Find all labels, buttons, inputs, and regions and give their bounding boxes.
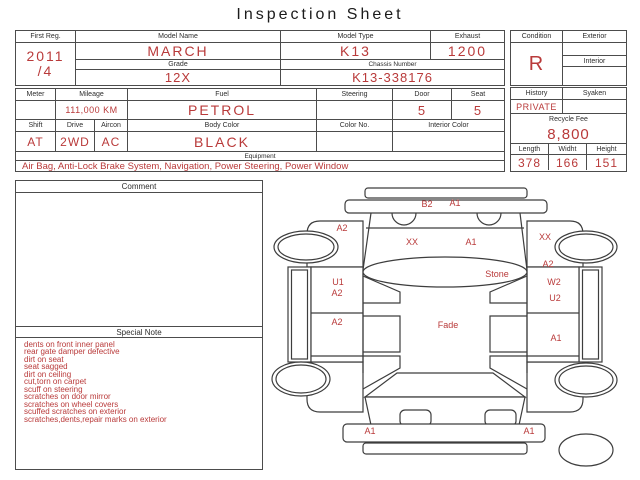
shift-label: Shift — [16, 120, 56, 132]
history-value: PRIVATE — [511, 100, 563, 114]
interior-color-value — [393, 132, 504, 152]
color-no-value — [317, 132, 393, 152]
length-label: Length — [511, 144, 549, 155]
damage-mark-w2: W2 — [547, 277, 561, 287]
rear-bumper-bar — [365, 188, 527, 198]
door-value: 5 — [393, 101, 452, 120]
right-rear-wheel — [555, 231, 617, 263]
drive-value: 2WD — [56, 132, 95, 152]
condition-grade-value: R — [511, 43, 563, 85]
damage-mark-a1: A1 — [550, 333, 561, 343]
left-pillar-mid — [363, 316, 400, 352]
special-note-label: Special Note — [16, 326, 262, 338]
recycle-fee-value: 8,800 — [511, 125, 626, 144]
height-label: Height — [587, 144, 626, 155]
damage-mark-a2: A2 — [542, 259, 553, 269]
rear-right-edge — [520, 213, 527, 270]
history-panel: History Syaken PRIVATE Recycle Fee 8,800… — [510, 87, 627, 172]
length-value: 378 — [511, 155, 549, 170]
special-note-list: dents on front inner panelrear gate damp… — [16, 338, 262, 469]
damage-mark-a1: A1 — [523, 426, 534, 436]
aircon-label: Aircon — [95, 120, 128, 132]
interior-color-label: Interior Color — [393, 120, 504, 132]
damage-mark-a2: A2 — [336, 223, 347, 233]
model-type-value: K13 — [281, 43, 431, 60]
damage-mark-fade: Fade — [438, 320, 459, 330]
model-name-label: Model Name — [76, 31, 281, 43]
damage-mark-a2: A2 — [331, 288, 342, 298]
damage-mark-xx: XX — [406, 237, 418, 247]
car-diagram: B2A1A2XXA1XXA2StoneU1A2W2U2A2FadeA1A1A1 — [263, 178, 635, 478]
chassis-number-label: Chassis Number — [281, 60, 504, 70]
door-label: Door — [393, 89, 452, 101]
exhaust-label: Exhaust — [431, 31, 504, 43]
vehicle-info-table: First Reg. 2011 /4 Model Name MARCH Grad… — [15, 30, 505, 86]
syaken-value — [563, 100, 626, 114]
exhaust-value: 1200 — [431, 43, 504, 60]
damage-mark-u2: U2 — [549, 293, 561, 303]
comment-panel: Comment Special Note dents on front inne… — [15, 180, 263, 470]
grade-value: 12X — [76, 70, 281, 85]
rear-window-arc-right — [477, 213, 501, 225]
windshield — [365, 373, 525, 397]
spare-tire — [559, 434, 613, 466]
damage-mark-a1: A1 — [449, 198, 460, 208]
seat-label: Seat — [452, 89, 504, 101]
meter-label: Meter — [16, 89, 56, 101]
history-label: History — [511, 88, 563, 100]
fuel-value: PETROL — [128, 101, 317, 120]
width-label: Widht — [549, 144, 587, 155]
drive-label: Drive — [56, 120, 95, 132]
exterior-label: Exterior — [563, 31, 626, 43]
rear-gate-bar — [345, 200, 547, 213]
spec-table: Meter Mileage Fuel Steering Door Seat 11… — [15, 88, 505, 172]
first-reg-month: /4 — [38, 64, 54, 79]
damage-mark-a2: A2 — [331, 317, 342, 327]
left-front-wheel — [272, 362, 330, 396]
equipment-label: Equipment — [16, 152, 504, 161]
syaken-label: Syaken — [563, 88, 626, 100]
left-rear-wheel — [274, 231, 338, 263]
height-value: 151 — [587, 155, 626, 170]
interior-value — [563, 67, 626, 85]
steering-value — [317, 101, 393, 120]
damage-mark-a1: A1 — [465, 237, 476, 247]
mileage-value: 111,000 KM — [56, 101, 128, 120]
comment-text — [16, 193, 262, 326]
first-reg-value: 2011 /4 — [16, 43, 76, 85]
right-front-wheel — [555, 363, 617, 397]
damage-mark-stone: Stone — [485, 269, 509, 279]
chassis-number-value: K13-338176 — [281, 70, 504, 85]
grade-label: Grade — [76, 60, 281, 70]
rear-left-edge — [363, 213, 371, 270]
rear-window-arc-left — [392, 213, 416, 225]
damage-mark-b2: B2 — [421, 199, 432, 209]
meter-value — [16, 101, 56, 120]
recycle-fee-label: Recycle Fee — [511, 114, 626, 125]
model-type-label: Model Type — [281, 31, 431, 43]
body-color-label: Body Color — [128, 120, 317, 132]
body-color-value: BLACK — [128, 132, 317, 152]
damage-mark-xx: XX — [539, 232, 551, 242]
first-reg-label: First Reg. — [16, 31, 76, 43]
inspection-sheet: Inspection Sheet First Reg. 2011 /4 Mode… — [0, 0, 640, 480]
mileage-label: Mileage — [56, 89, 128, 101]
damage-mark-a1: A1 — [364, 426, 375, 436]
shift-value: AT — [16, 132, 56, 152]
condition-panel: Condition R Exterior Interior — [510, 30, 627, 86]
equipment-value: Air Bag, Anti-Lock Brake System, Navigat… — [16, 161, 504, 171]
fuel-label: Fuel — [128, 89, 317, 101]
exterior-value — [563, 43, 626, 56]
interior-label: Interior — [563, 56, 626, 67]
condition-label: Condition — [511, 31, 563, 43]
page-title: Inspection Sheet — [0, 6, 640, 24]
comment-label: Comment — [16, 181, 262, 193]
color-no-label: Color No. — [317, 120, 393, 132]
aircon-value: AC — [95, 132, 128, 152]
seat-value: 5 — [452, 101, 504, 120]
width-value: 166 — [549, 155, 587, 170]
front-lower-bar — [363, 443, 527, 454]
special-note-item: scratches,dents,repair marks on exterior — [24, 416, 258, 423]
steering-label: Steering — [317, 89, 393, 101]
right-pillar-mid — [490, 316, 527, 352]
damage-mark-u1: U1 — [332, 277, 344, 287]
first-reg-year: 2011 — [26, 49, 64, 64]
model-name-value: MARCH — [76, 43, 281, 60]
